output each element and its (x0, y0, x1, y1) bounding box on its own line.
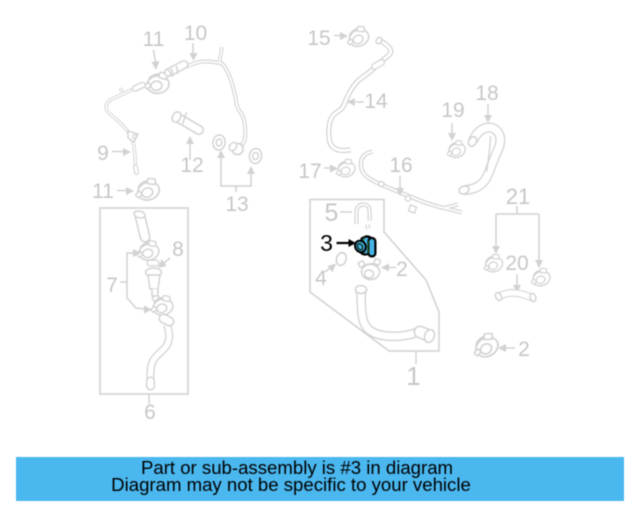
svg-text:15: 15 (307, 27, 330, 50)
svg-text:13: 13 (225, 193, 248, 216)
svg-text:3: 3 (320, 230, 333, 256)
svg-text:11: 11 (92, 180, 114, 203)
svg-text:20: 20 (505, 252, 528, 275)
svg-text:8: 8 (172, 238, 184, 261)
svg-text:14: 14 (364, 90, 388, 113)
svg-text:21: 21 (506, 184, 530, 209)
svg-text:1: 1 (406, 361, 420, 391)
svg-text:18: 18 (475, 82, 498, 105)
svg-text:2: 2 (396, 258, 408, 281)
svg-text:Diagram may not be specific to: Diagram may not be specific to your vehi… (111, 474, 471, 495)
svg-text:2: 2 (518, 338, 530, 361)
svg-text:7: 7 (106, 274, 118, 297)
svg-text:5: 5 (325, 199, 339, 227)
svg-text:11: 11 (143, 28, 165, 51)
svg-text:12: 12 (180, 154, 203, 177)
svg-text:16: 16 (389, 154, 412, 177)
svg-text:4: 4 (315, 267, 327, 290)
svg-text:17: 17 (298, 160, 321, 183)
svg-text:10: 10 (184, 22, 207, 45)
svg-text:19: 19 (441, 99, 464, 122)
svg-text:9: 9 (97, 142, 109, 165)
svg-text:6: 6 (144, 401, 156, 424)
